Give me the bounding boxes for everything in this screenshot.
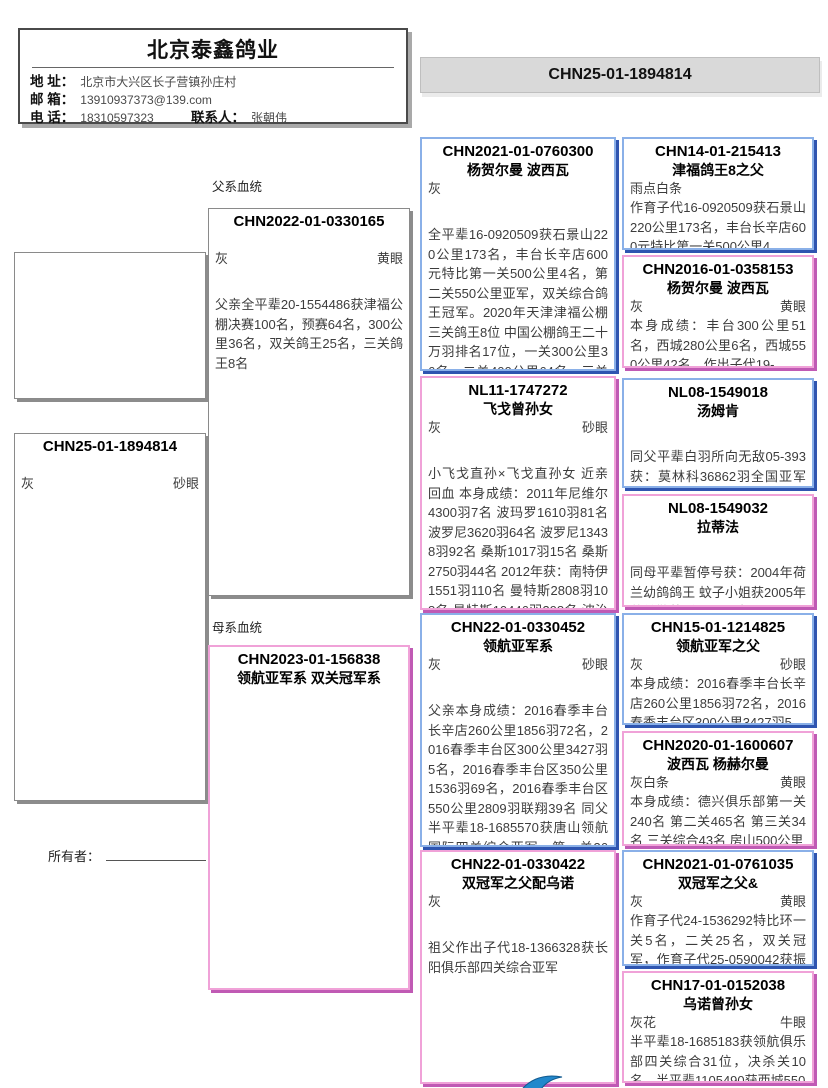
mother-ring: CHN2023-01-156838 — [216, 650, 402, 669]
subject-traits: 灰 砂眼 — [21, 474, 199, 493]
box-color: 灰 — [428, 892, 441, 911]
box-color: 灰 — [630, 892, 643, 911]
box-color: 灰白条 — [630, 773, 669, 792]
phone-label: 电 话： — [30, 110, 74, 125]
email-label: 邮 箱： — [30, 92, 74, 107]
subject-ring: CHN25-01-1894814 — [21, 437, 199, 456]
box-desc: 作育子代16-0920509获石景山220公里173名，丰台长辛店600元特比第… — [630, 198, 806, 250]
box-traits: 灰 — [428, 179, 608, 198]
ring-number: CHN25-01-1894814 — [548, 66, 691, 84]
email-value: 13910937373@139.com — [80, 93, 212, 107]
box-eye: 黄眼 — [780, 297, 806, 316]
box-name: 乌诺曾孙女 — [630, 995, 806, 1013]
loft-info-card: 北京泰鑫鸽业 地 址：北京市大兴区长子营镇孙庄村 邮 箱：13910937373… — [18, 28, 408, 124]
great-grandparent-box-3: NL08-1549018 汤姆肯 同父平辈白羽所向无敌05-393获：莫林科36… — [622, 378, 814, 488]
subject-color: 灰 — [21, 474, 34, 493]
great-grandparent-box-6: CHN2020-01-1600607 波西瓦 杨赫尔曼 灰白条 黄眼 本身成绩：… — [622, 731, 814, 846]
box-ring: CHN14-01-215413 — [630, 142, 806, 161]
box-name: 领航亚军系 — [428, 637, 608, 655]
box-desc: 同父平辈白羽所向无敌05-393获：莫林科36862羽全国亚军 香提利22571… — [630, 447, 806, 488]
box-traits: 雨点白条 — [630, 179, 806, 198]
box-color: 灰 — [630, 655, 643, 674]
box-ring: CHN22-01-0330422 — [428, 855, 608, 874]
ring-number-bar: CHN25-01-1894814 — [420, 57, 820, 93]
great-grandparent-box-1: CHN14-01-215413 津福鸽王8之父 雨点白条 作育子代16-0920… — [622, 137, 814, 250]
subject-bird-box: CHN25-01-1894814 灰 砂眼 — [14, 433, 206, 801]
box-ring: NL08-1549032 — [630, 499, 806, 518]
box-ring: CHN2021-01-0761035 — [630, 855, 806, 874]
loft-email-line: 邮 箱：13910937373@139.com — [30, 91, 396, 109]
contact-value: 张朝伟 — [251, 111, 287, 125]
box-desc: 同母平辈暂停号获：2004年荷兰幼鸽鸽王 蚊子小姐获2005年荷兰勒芒斯12万羽… — [630, 563, 806, 607]
father-box: CHN2022-01-0330165 灰 黄眼 父亲全平辈20-1554486获… — [208, 208, 410, 596]
box-color: 灰 — [630, 297, 643, 316]
box-name: 双冠军之父& — [630, 874, 806, 892]
box-traits: 灰 砂眼 — [428, 418, 608, 437]
box-name: 津福鸽王8之父 — [630, 161, 806, 179]
box-ring: NL08-1549018 — [630, 383, 806, 402]
box-ring: CHN2016-01-0358153 — [630, 260, 806, 279]
box-eye: 牛眼 — [780, 1013, 806, 1032]
father-eye: 黄眼 — [377, 249, 403, 268]
box-name: 汤姆肯 — [630, 402, 806, 420]
box-ring: CHN15-01-1214825 — [630, 618, 806, 637]
box-traits: 灰白条 黄眼 — [630, 773, 806, 792]
box-ring: NL11-1747272 — [428, 381, 608, 400]
box-name: 双冠军之父配乌诺 — [428, 874, 608, 892]
box-desc: 作育子代24-1536292特比环一关5名，二关25名，双关冠军，作育子代25-… — [630, 911, 806, 966]
mother-box: CHN2023-01-156838 领航亚军系 双关冠军系 — [208, 645, 410, 990]
box-traits: 灰 砂眼 — [428, 655, 608, 674]
box-ring: CHN2021-01-0760300 — [428, 142, 608, 161]
box-desc: 本身成绩：丰台300公里51名，西城280公里6名，西城550公里42名，作出子… — [630, 316, 806, 368]
great-grandparent-box-7: CHN2021-01-0761035 双冠军之父& 灰 黄眼 作育子代24-15… — [622, 850, 814, 966]
box-desc: 本身成绩：2016春季丰台长辛店260公里1856羽72名，2016春季丰台区3… — [630, 674, 806, 725]
address-label: 地 址： — [30, 74, 74, 89]
box-traits: 灰 黄眼 — [630, 297, 806, 316]
contact-wrap: 联系人：张朝伟 — [191, 111, 287, 125]
box-desc: 本身成绩：德兴俱乐部第一关240名 第二关465名 第三关34名 三关综合43名… — [630, 792, 806, 846]
father-color: 灰 — [215, 249, 228, 268]
box-traits: 灰花 牛眼 — [630, 1013, 806, 1032]
owner-label: 所有者： — [48, 849, 100, 864]
great-grandparent-box-2: CHN2016-01-0358153 杨贺尔曼 波西瓦 灰 黄眼 本身成绩：丰台… — [622, 255, 814, 368]
subject-eye: 砂眼 — [173, 474, 199, 493]
box-color: 灰花 — [630, 1013, 656, 1032]
divider — [32, 67, 394, 68]
box-name: 拉蒂法 — [630, 518, 806, 536]
box-eye: 砂眼 — [582, 655, 608, 674]
great-grandparent-box-4: NL08-1549032 拉蒂法 同母平辈暂停号获：2004年荷兰幼鸽鸽王 蚊子… — [622, 494, 814, 607]
box-desc: 半平辈18-1685183获领航俱乐部四关综合31位，决杀关10名，半平辈110… — [630, 1032, 806, 1083]
box-eye: 黄眼 — [780, 773, 806, 792]
box-desc: 父亲本身成绩：2016春季丰台长辛店260公里1856羽72名，2016春季丰台… — [428, 701, 608, 847]
mother-name: 领航亚军系 双关冠军系 — [216, 669, 402, 687]
box-color: 灰 — [428, 418, 441, 437]
grandsire-maternal-box: CHN22-01-0330452 领航亚军系 灰 砂眼 父亲本身成绩：2016春… — [420, 613, 616, 847]
box-color: 灰 — [428, 179, 441, 198]
box-traits: 灰 黄眼 — [630, 892, 806, 911]
box-eye: 砂眼 — [582, 418, 608, 437]
box-name: 飞戈曾孙女 — [428, 400, 608, 418]
loft-phone-line: 电 话：18310597323 联系人：张朝伟 — [30, 109, 396, 127]
grandsire-paternal-box: CHN2021-01-0760300 杨贺尔曼 波西瓦 灰 全平辈16-0920… — [420, 137, 616, 371]
box-color: 灰 — [428, 655, 441, 674]
contact-label: 联系人： — [191, 110, 245, 125]
box-eye: 砂眼 — [780, 655, 806, 674]
box-ring: CHN17-01-0152038 — [630, 976, 806, 995]
owner-blank-line — [106, 847, 206, 861]
pedigree-certificate: 北京泰鑫鸽业 地 址：北京市大兴区长子营镇孙庄村 邮 箱：13910937373… — [0, 0, 828, 1088]
box-traits: 灰 砂眼 — [630, 655, 806, 674]
granddam-maternal-box: CHN22-01-0330422 双冠军之父配乌诺 灰 祖父作出子代18-136… — [420, 850, 616, 1084]
loft-name: 北京泰鑫鸽业 — [30, 34, 396, 64]
box-color: 雨点白条 — [630, 179, 682, 198]
box-traits: 灰 — [428, 892, 608, 911]
loft-address-line: 地 址：北京市大兴区长子营镇孙庄村 — [30, 73, 396, 91]
paternal-bloodline-label: 父系血统 — [212, 176, 262, 195]
phone-value: 18310597323 — [80, 111, 153, 125]
box-eye: 黄眼 — [780, 892, 806, 911]
maternal-bloodline-label: 母系血统 — [212, 617, 262, 636]
box-desc: 祖父作出子代18-1366328获长阳俱乐部四关综合亚军 — [428, 938, 608, 977]
great-grandparent-box-8: CHN17-01-0152038 乌诺曾孙女 灰花 牛眼 半平辈18-16851… — [622, 971, 814, 1083]
pigeon-photo-placeholder — [14, 252, 206, 399]
father-desc: 父亲全平辈20-1554486获津福公棚决赛100名，预赛64名，300公里36… — [215, 295, 403, 373]
box-ring: CHN2020-01-1600607 — [630, 736, 806, 755]
box-desc: 全平辈16-0920509获石景山220公里173名，丰台长辛店600元特比第一… — [428, 225, 608, 371]
box-desc: 小飞戈直孙×飞戈直孙女 近亲回血 本身成绩：2011年尼维尔4300羽7名 波玛… — [428, 464, 608, 610]
box-name: 波西瓦 杨赫尔曼 — [630, 755, 806, 773]
box-ring: CHN22-01-0330452 — [428, 618, 608, 637]
granddam-paternal-box: NL11-1747272 飞戈曾孙女 灰 砂眼 小飞戈直孙×飞戈直孙女 近亲回血… — [420, 376, 616, 610]
father-ring: CHN2022-01-0330165 — [215, 212, 403, 231]
address-value: 北京市大兴区长子营镇孙庄村 — [80, 75, 236, 89]
owner-row: 所有者： — [48, 846, 206, 865]
box-name: 杨贺尔曼 波西瓦 — [428, 161, 608, 179]
box-name: 杨贺尔曼 波西瓦 — [630, 279, 806, 297]
father-traits: 灰 黄眼 — [215, 249, 403, 268]
box-name: 领航亚军之父 — [630, 637, 806, 655]
great-grandparent-box-5: CHN15-01-1214825 领航亚军之父 灰 砂眼 本身成绩：2016春季… — [622, 613, 814, 725]
pigeon-logo-icon — [516, 1071, 564, 1088]
